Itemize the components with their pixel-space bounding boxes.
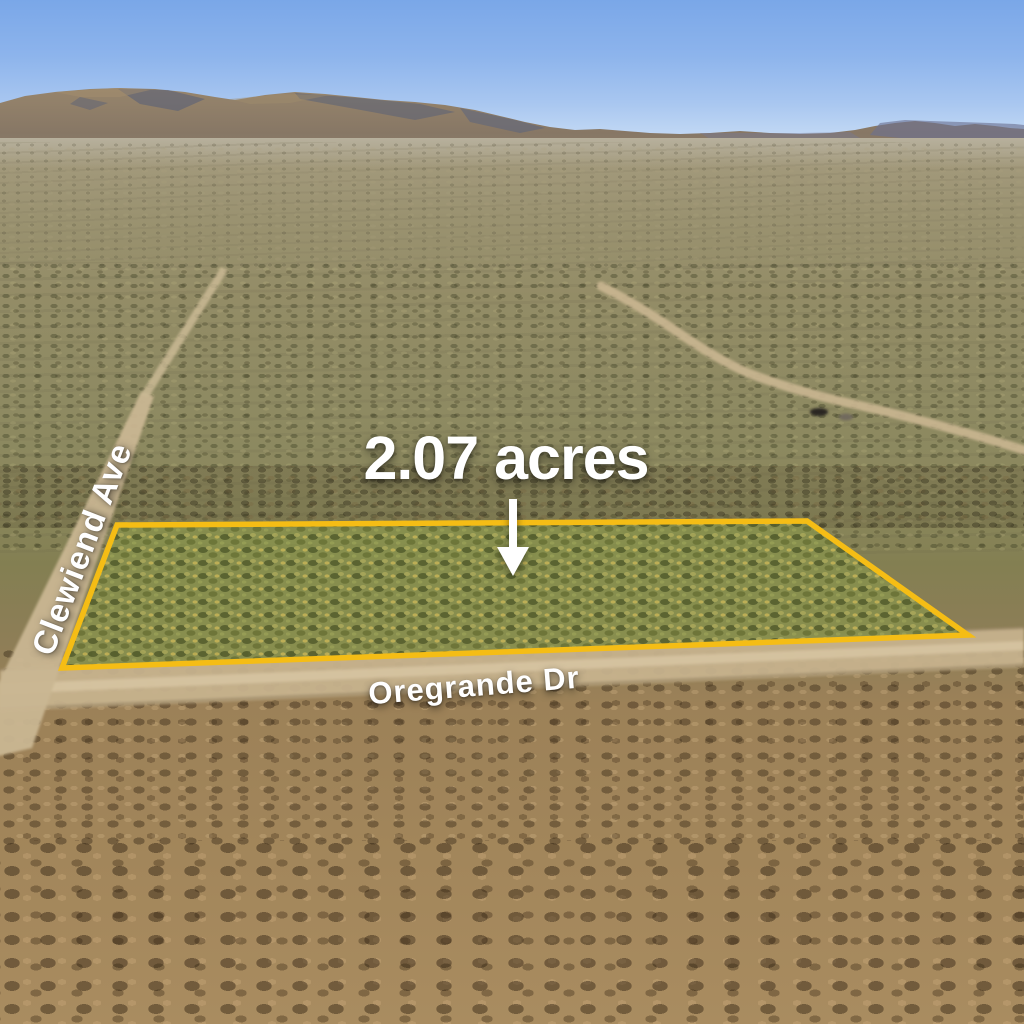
- aerial-parcel-photo: 2.07 acres Clewiend Ave Oregrande Dr: [0, 0, 1024, 1024]
- acreage-label: 2.07 acres: [363, 423, 648, 493]
- down-arrow-icon: [0, 0, 1024, 1024]
